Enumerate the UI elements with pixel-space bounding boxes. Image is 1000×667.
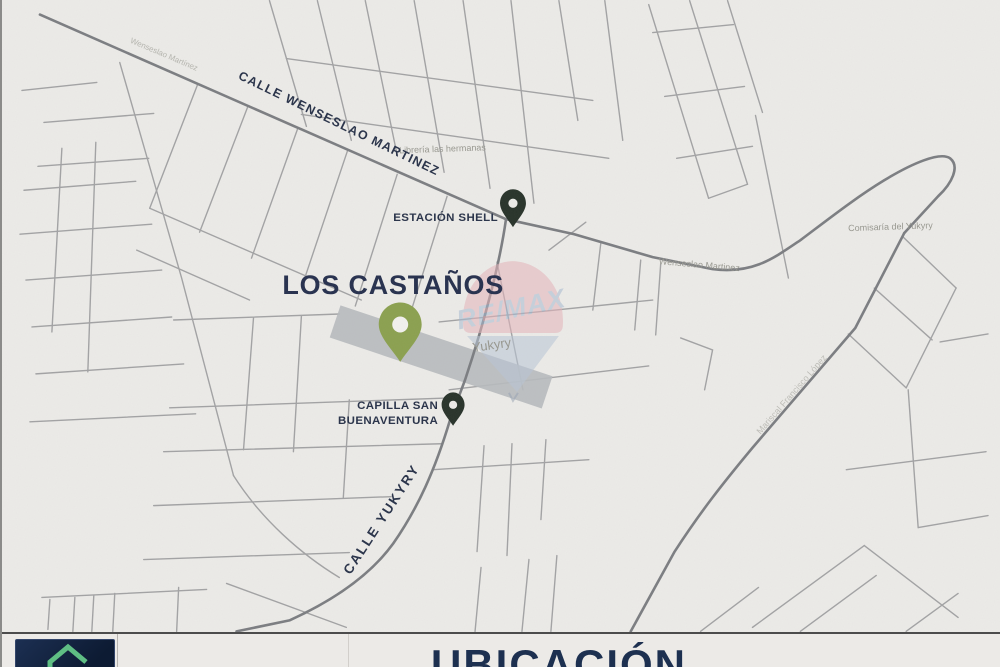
location-page: RE/MAX Wenseslao Martínez Librería las h… (0, 0, 1000, 667)
footer-band: UBICACIÓN (2, 632, 1000, 667)
section-title: UBICACIÓN (118, 641, 1000, 667)
map-panel: RE/MAX Wenseslao Martínez Librería las h… (2, 0, 1000, 632)
title-cell: UBICACIÓN (118, 634, 1000, 667)
house-icon (30, 640, 100, 667)
logo-cell (2, 634, 118, 667)
brand-logo (15, 639, 115, 667)
street-map: RE/MAX Wenseslao Martínez Librería las h… (2, 0, 1000, 632)
paper-texture (2, 1, 1000, 632)
